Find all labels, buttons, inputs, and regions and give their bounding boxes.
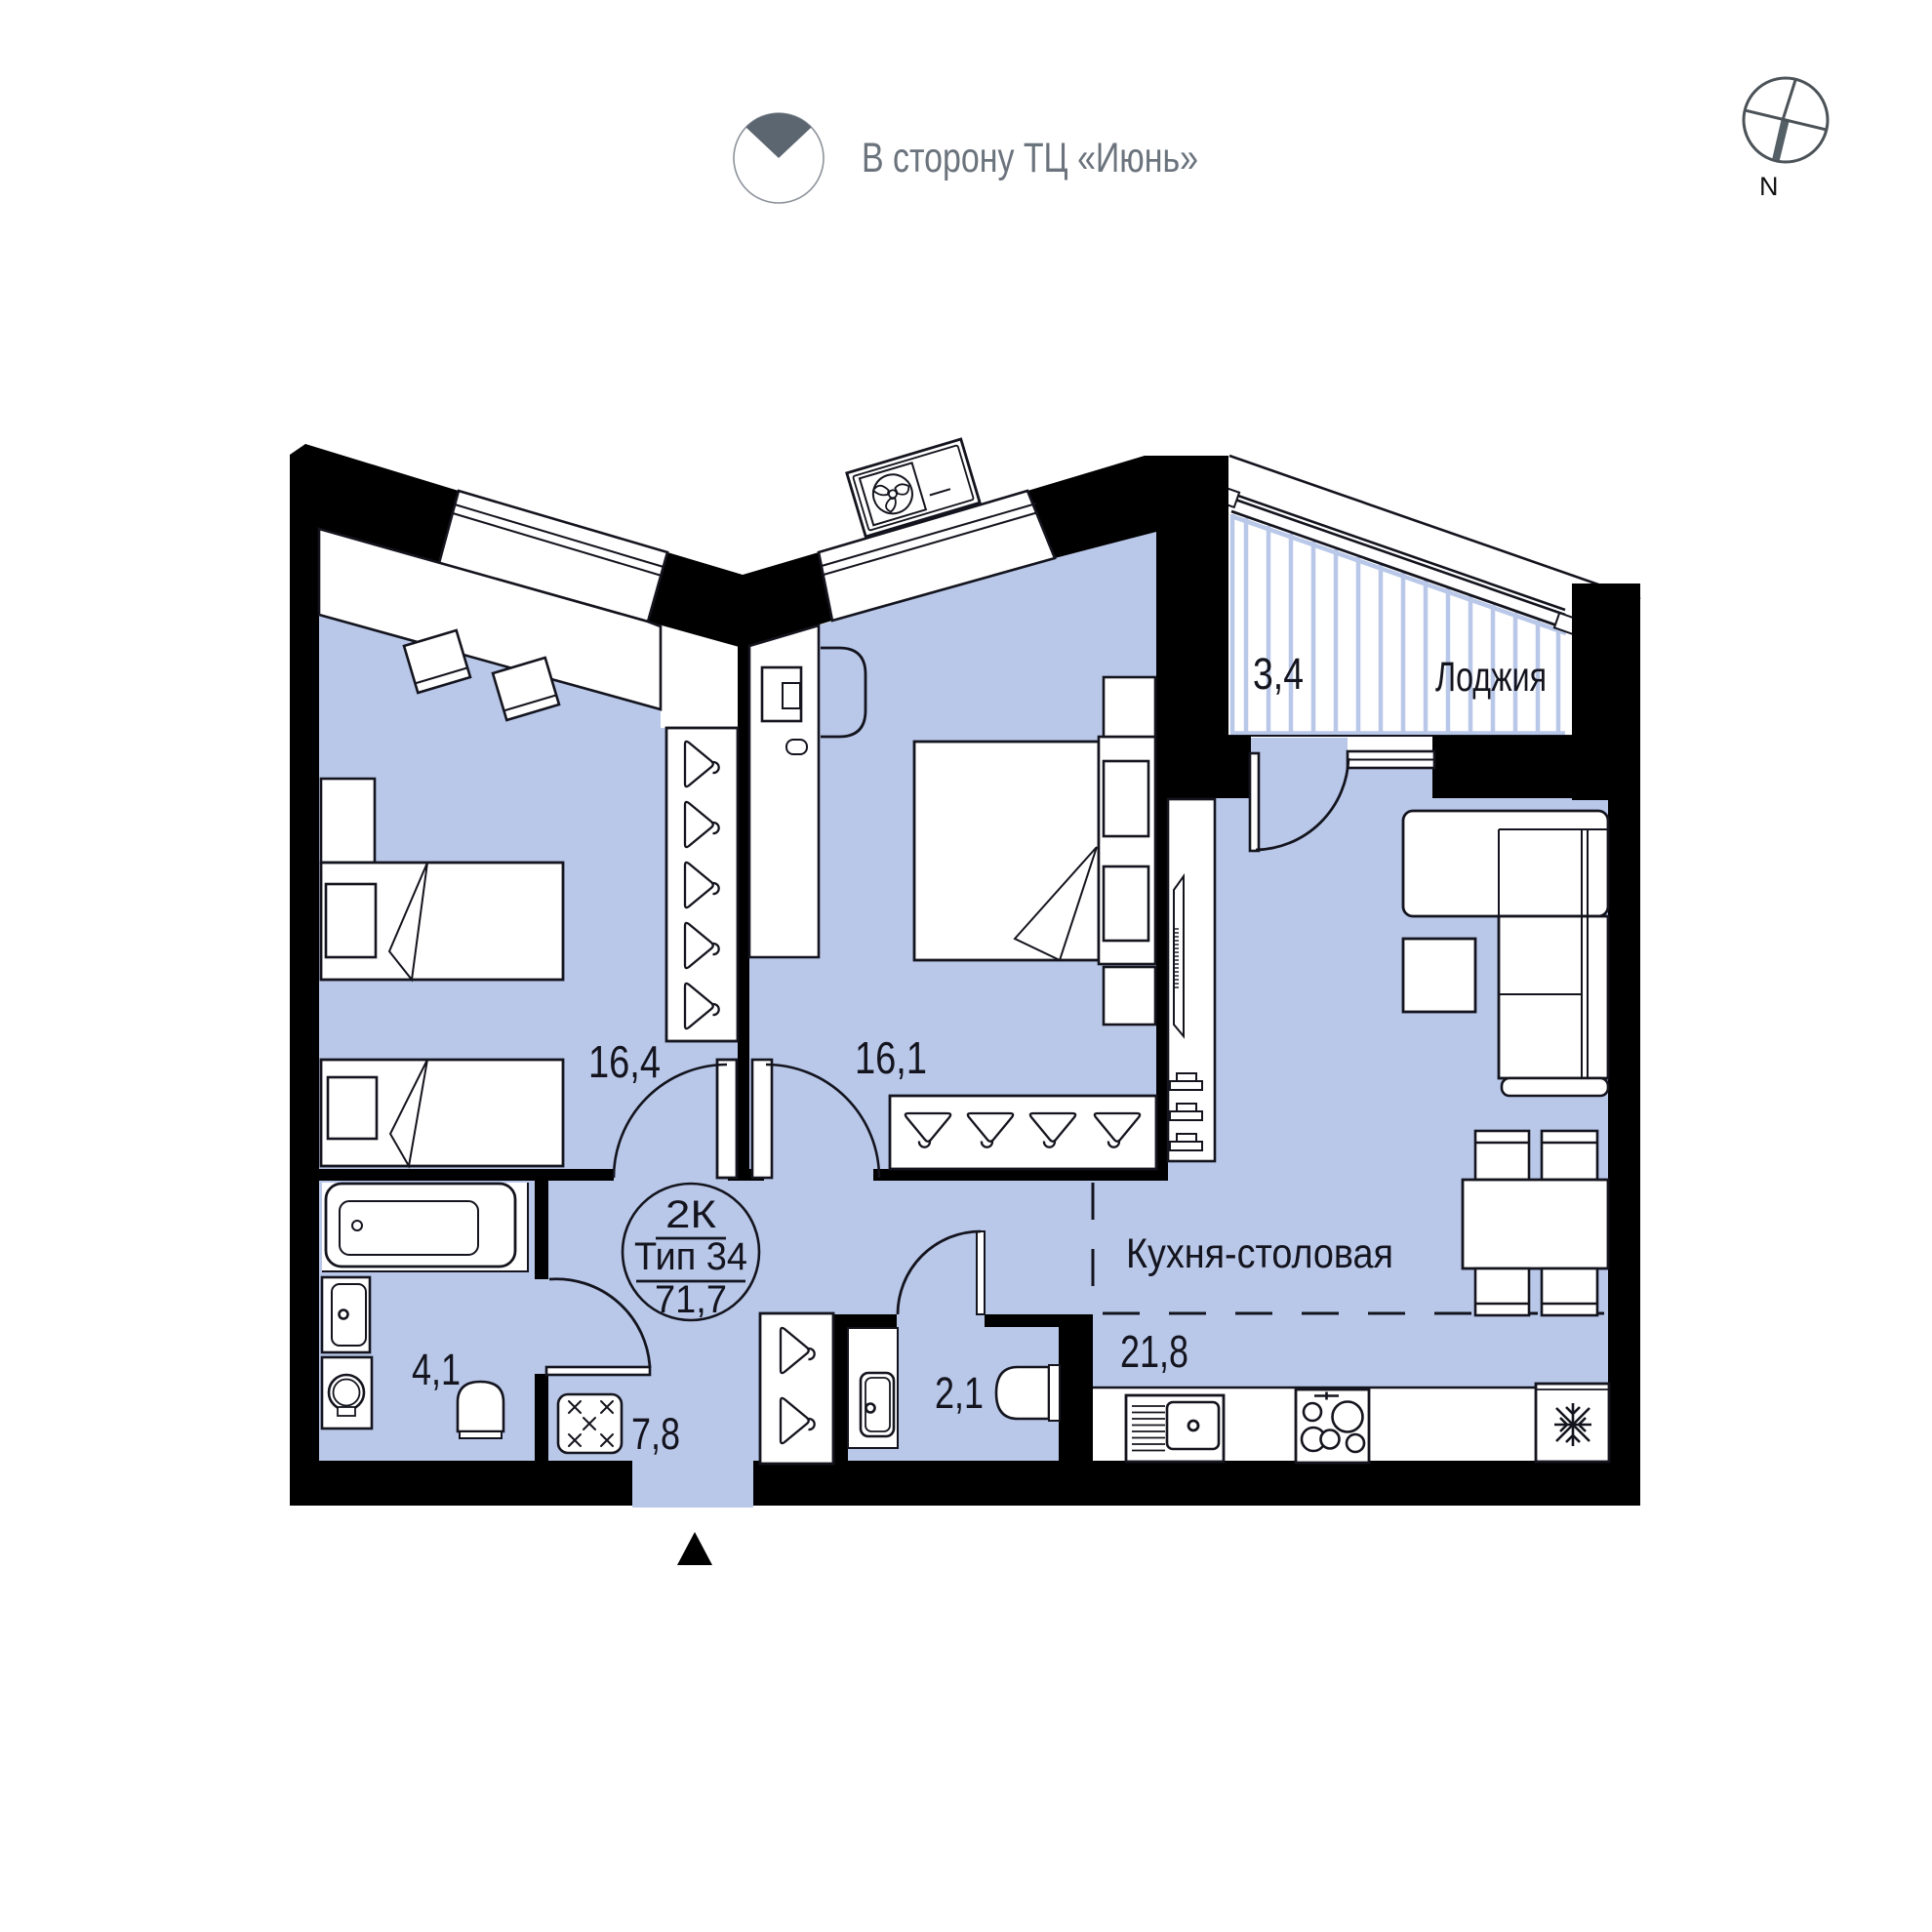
svg-text:16,4: 16,4 bbox=[588, 1036, 661, 1087]
svg-text:21,8: 21,8 bbox=[1120, 1326, 1188, 1377]
svg-text:Кухня-столовая: Кухня-столовая bbox=[1126, 1230, 1393, 1277]
svg-text:Лоджия: Лоджия bbox=[1435, 654, 1547, 701]
svg-text:3,4: 3,4 bbox=[1253, 649, 1304, 699]
svg-text:2К: 2К bbox=[665, 1193, 717, 1236]
svg-text:Тип 34: Тип 34 bbox=[634, 1235, 747, 1278]
svg-text:В сторону ТЦ «Июнь»: В сторону ТЦ «Июнь» bbox=[862, 135, 1198, 181]
svg-text:N: N bbox=[1759, 172, 1779, 201]
svg-text:4,1: 4,1 bbox=[412, 1345, 461, 1394]
svg-text:16,1: 16,1 bbox=[855, 1032, 927, 1083]
svg-text:2,1: 2,1 bbox=[935, 1368, 984, 1418]
svg-text:7,8: 7,8 bbox=[631, 1409, 680, 1459]
svg-text:71,7: 71,7 bbox=[655, 1278, 727, 1321]
